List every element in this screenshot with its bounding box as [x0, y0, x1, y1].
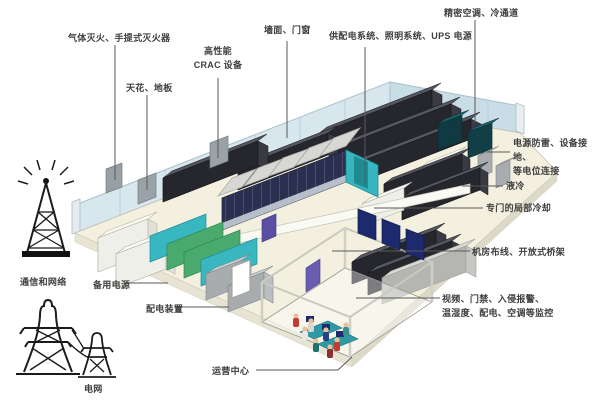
label-operations-center: 运营中心	[212, 364, 249, 378]
label-monitoring: 视频、门禁、入侵报警、 温湿度、配电、空调等监控	[442, 292, 554, 320]
label-power-lighting-ups: 供配电系统、照明系统、UPS 电源	[329, 29, 472, 43]
label-fire-suppression: 气体灭火、手提式灭火器	[68, 31, 170, 45]
label-backup-power: 备用电源	[93, 278, 130, 292]
label-distribution-gear: 配电装置	[146, 302, 183, 316]
label-power-grid: 电网	[84, 382, 103, 396]
data-center-diagram: 气体灭火、手提式灭火器 天花、地板 高性能 CRAC 设备 墙面、门窗 供配电系…	[0, 0, 600, 400]
label-precision-ac: 精密空调、冷通道	[444, 6, 518, 20]
label-crac-equipment: 高性能 CRAC 设备	[173, 44, 263, 72]
power-pylons-icon	[16, 300, 116, 377]
label-surge-grounding: 电源防雷、设备接地、 等电位连接	[513, 136, 600, 178]
building-illustration	[0, 0, 600, 400]
label-wall-doors-windows: 墙面、门窗	[264, 23, 311, 37]
label-local-cooling: 专门的局部冷却	[486, 201, 551, 215]
label-cabling-tray: 机房布线、开放式桥架	[472, 245, 565, 259]
label-ceiling-floor: 天花、地板	[126, 81, 173, 95]
transmission-tower-icon	[18, 160, 74, 257]
label-liquid-cooling: 液冷	[506, 179, 525, 193]
label-comm-network: 通信和网络	[20, 275, 67, 289]
